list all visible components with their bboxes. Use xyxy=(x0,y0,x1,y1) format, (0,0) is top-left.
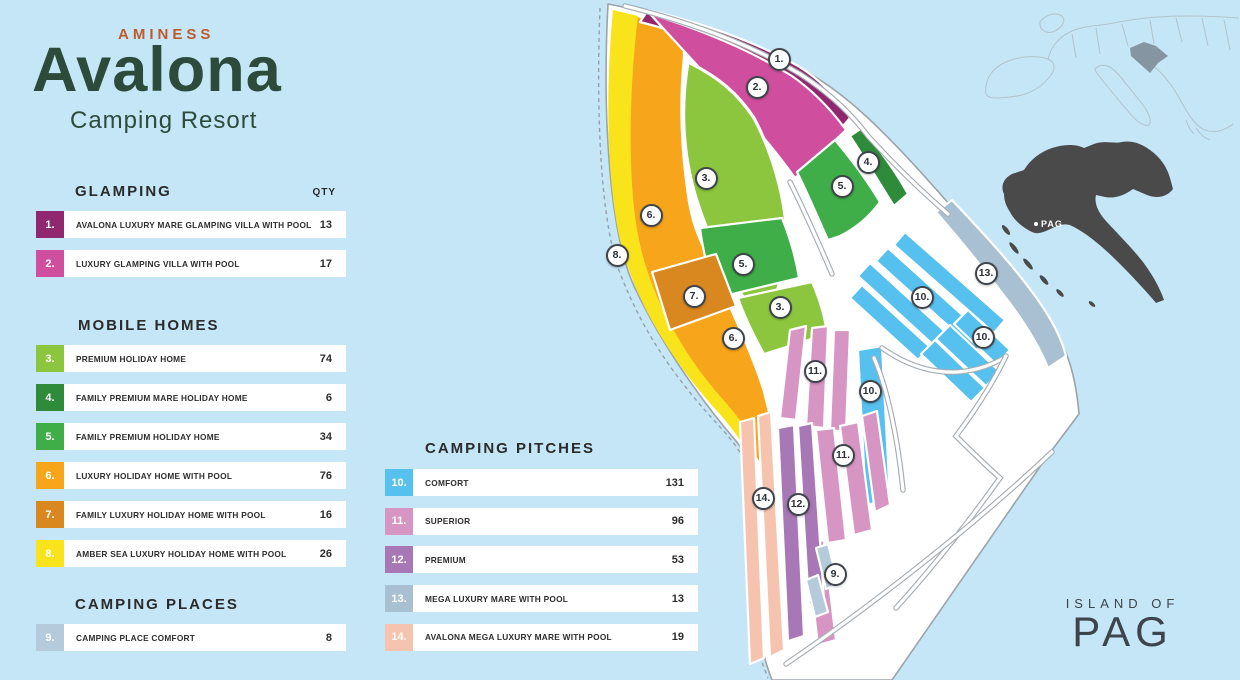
pag-location-label: PAG xyxy=(1034,219,1063,229)
legend-row: 2.LUXURY GLAMPING VILLA WITH POOL17 xyxy=(36,250,346,277)
legend-item-number: 11. xyxy=(392,515,407,527)
camping-places-rows: 9.CAMPING PLACE COMFORT8 xyxy=(36,624,346,651)
legend-item-label: FAMILY LUXURY HOLIDAY HOME WITH POOL xyxy=(76,510,320,520)
pag-label-text: PAG xyxy=(1041,219,1063,229)
map-marker-10: 10. xyxy=(859,380,882,403)
section-title-glamping: GLAMPING xyxy=(75,183,172,200)
legend-row: 7.FAMILY LUXURY HOLIDAY HOME WITH POOL16 xyxy=(36,501,346,528)
legend-item-bar: CAMPING PLACE COMFORT8 xyxy=(64,624,346,651)
legend-item-qty: 6 xyxy=(326,392,332,404)
legend-item-number: 7. xyxy=(45,509,54,521)
legend-color-square: 6. xyxy=(36,462,64,489)
map-marker-11: 11. xyxy=(832,444,855,467)
qty-column-header: QTY xyxy=(296,187,336,198)
legend-row: 14.AVALONA MEGA LUXURY MARE WITH POOL19 xyxy=(385,624,698,651)
legend-item-label: AVALONA MEGA LUXURY MARE WITH POOL xyxy=(425,632,672,642)
legend-item-qty: 96 xyxy=(672,515,684,527)
legend-item-qty: 13 xyxy=(672,593,684,605)
section-title-camping-pitches: CAMPING PITCHES xyxy=(425,440,595,457)
legend-row: 6.LUXURY HOLIDAY HOME WITH POOL76 xyxy=(36,462,346,489)
legend-item-number: 14. xyxy=(391,631,406,643)
legend-item-qty: 53 xyxy=(672,554,684,566)
legend-item-label: COMFORT xyxy=(425,478,666,488)
legend-row: 13.MEGA LUXURY MARE WITH POOL13 xyxy=(385,585,698,612)
map-marker-7: 7. xyxy=(683,285,706,308)
map-marker-5: 5. xyxy=(732,253,755,276)
legend-item-label: MEGA LUXURY MARE WITH POOL xyxy=(425,594,672,604)
legend-color-square: 10. xyxy=(385,469,413,496)
legend-item-qty: 13 xyxy=(320,219,332,231)
legend-color-square: 13. xyxy=(385,585,413,612)
legend-item-qty: 8 xyxy=(326,632,332,644)
legend-item-bar: AVALONA LUXURY MARE GLAMPING VILLA WITH … xyxy=(64,211,346,238)
legend-item-number: 13. xyxy=(391,593,406,605)
legend-item-label: PREMIUM xyxy=(425,555,672,565)
legend-item-bar: AVALONA MEGA LUXURY MARE WITH POOL19 xyxy=(413,624,698,651)
legend-row: 1.AVALONA LUXURY MARE GLAMPING VILLA WIT… xyxy=(36,211,346,238)
legend-row: 3.PREMIUM HOLIDAY HOME74 xyxy=(36,345,346,372)
legend-item-bar: LUXURY HOLIDAY HOME WITH POOL76 xyxy=(64,462,346,489)
legend-row: 4.FAMILY PREMIUM MARE HOLIDAY HOME6 xyxy=(36,384,346,411)
legend-item-number: 10. xyxy=(391,477,406,489)
legend-row: 12.PREMIUM53 xyxy=(385,546,698,573)
legend-item-number: 1. xyxy=(45,219,54,231)
mobile-homes-rows: 3.PREMIUM HOLIDAY HOME744.FAMILY PREMIUM… xyxy=(36,345,346,567)
map-marker-3: 3. xyxy=(695,167,718,190)
map-marker-1: 1. xyxy=(768,48,791,71)
legend-item-qty: 76 xyxy=(320,470,332,482)
map-marker-6: 6. xyxy=(722,327,745,350)
legend-item-bar: FAMILY PREMIUM HOLIDAY HOME34 xyxy=(64,423,346,450)
legend-item-qty: 34 xyxy=(320,431,332,443)
croatia-highlight-europe xyxy=(1130,42,1168,73)
legend-item-bar: SUPERIOR96 xyxy=(413,508,698,535)
map-marker-4: 4. xyxy=(857,151,880,174)
resort-subtitle: Camping Resort xyxy=(70,107,257,135)
legend-item-label: FAMILY PREMIUM HOLIDAY HOME xyxy=(76,432,320,442)
map-marker-11: 11. xyxy=(804,360,827,383)
pag-marker-dot xyxy=(1034,222,1038,226)
map-marker-6: 6. xyxy=(640,204,663,227)
legend-item-label: AMBER SEA LUXURY HOLIDAY HOME WITH POOL xyxy=(76,549,320,559)
legend-row: 11.SUPERIOR96 xyxy=(385,508,698,535)
resort-name: Avalona xyxy=(32,34,282,106)
legend-color-square: 14. xyxy=(385,624,413,651)
legend-color-square: 3. xyxy=(36,345,64,372)
legend-item-number: 8. xyxy=(45,548,54,560)
legend-color-square: 11. xyxy=(385,508,413,535)
legend-row: 10.COMFORT131 xyxy=(385,469,698,496)
legend-item-number: 4. xyxy=(45,392,54,404)
map-marker-13: 13. xyxy=(975,262,998,285)
resort-map-page: AMINESS Avalona Camping Resort GLAMPING … xyxy=(0,0,1240,680)
map-marker-3: 3. xyxy=(769,296,792,319)
legend-color-square: 9. xyxy=(36,624,64,651)
legend-item-label: FAMILY PREMIUM MARE HOLIDAY HOME xyxy=(76,393,326,403)
legend-item-qty: 74 xyxy=(320,353,332,365)
glamping-rows: 1.AVALONA LUXURY MARE GLAMPING VILLA WIT… xyxy=(36,211,346,277)
legend-item-qty: 131 xyxy=(666,477,684,489)
legend-row: 8.AMBER SEA LUXURY HOLIDAY HOME WITH POO… xyxy=(36,540,346,567)
legend-item-number: 2. xyxy=(45,258,54,270)
legend-item-bar: PREMIUM HOLIDAY HOME74 xyxy=(64,345,346,372)
map-marker-8: 8. xyxy=(606,244,629,267)
legend-row: 9.CAMPING PLACE COMFORT8 xyxy=(36,624,346,651)
legend-item-label: AVALONA LUXURY MARE GLAMPING VILLA WITH … xyxy=(76,220,320,230)
map-marker-2: 2. xyxy=(746,76,769,99)
section-title-camping-places: CAMPING PLACES xyxy=(75,596,239,613)
legend-item-bar: PREMIUM53 xyxy=(413,546,698,573)
legend-item-qty: 17 xyxy=(320,258,332,270)
map-marker-14: 14. xyxy=(752,487,775,510)
section-title-mobile-homes: MOBILE HOMES xyxy=(78,317,220,334)
camping-pitches-rows: 10.COMFORT13111.SUPERIOR9612.PREMIUM5313… xyxy=(385,469,698,651)
legend-color-square: 2. xyxy=(36,250,64,277)
legend-item-number: 6. xyxy=(45,470,54,482)
map-marker-12: 12. xyxy=(787,493,810,516)
legend-item-number: 9. xyxy=(45,632,54,644)
legend-item-number: 12. xyxy=(391,554,406,566)
legend-item-bar: COMFORT131 xyxy=(413,469,698,496)
legend-color-square: 8. xyxy=(36,540,64,567)
legend-item-label: CAMPING PLACE COMFORT xyxy=(76,633,326,643)
map-marker-10: 10. xyxy=(911,286,934,309)
legend-item-label: SUPERIOR xyxy=(425,516,672,526)
legend-item-bar: MEGA LUXURY MARE WITH POOL13 xyxy=(413,585,698,612)
legend-row: 5.FAMILY PREMIUM HOLIDAY HOME34 xyxy=(36,423,346,450)
legend-item-bar: FAMILY PREMIUM MARE HOLIDAY HOME6 xyxy=(64,384,346,411)
legend-item-number: 5. xyxy=(45,431,54,443)
legend-item-qty: 26 xyxy=(320,548,332,560)
legend-color-square: 1. xyxy=(36,211,64,238)
legend-item-number: 3. xyxy=(45,353,54,365)
legend-item-label: PREMIUM HOLIDAY HOME xyxy=(76,354,320,364)
legend-item-bar: AMBER SEA LUXURY HOLIDAY HOME WITH POOL2… xyxy=(64,540,346,567)
legend-color-square: 5. xyxy=(36,423,64,450)
legend-color-square: 4. xyxy=(36,384,64,411)
legend-color-square: 12. xyxy=(385,546,413,573)
map-marker-5: 5. xyxy=(831,175,854,198)
legend-item-qty: 19 xyxy=(672,631,684,643)
legend-item-label: LUXURY GLAMPING VILLA WITH POOL xyxy=(76,259,320,269)
map-marker-9: 9. xyxy=(824,563,847,586)
legend-item-qty: 16 xyxy=(320,509,332,521)
island-name-label: PAG xyxy=(1040,608,1205,656)
europe-inset-map xyxy=(986,14,1239,140)
legend-item-label: LUXURY HOLIDAY HOME WITH POOL xyxy=(76,471,320,481)
legend-item-bar: LUXURY GLAMPING VILLA WITH POOL17 xyxy=(64,250,346,277)
map-marker-10: 10. xyxy=(972,326,995,349)
legend-item-bar: FAMILY LUXURY HOLIDAY HOME WITH POOL16 xyxy=(64,501,346,528)
legend-color-square: 7. xyxy=(36,501,64,528)
